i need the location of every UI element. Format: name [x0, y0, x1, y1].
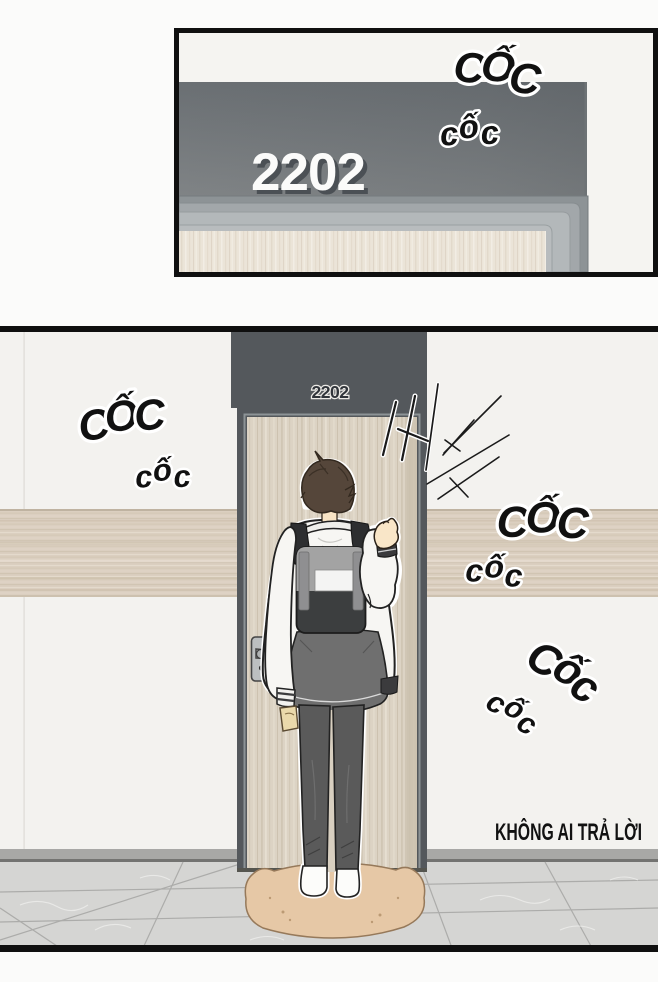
svg-text:2202: 2202 [312, 382, 350, 402]
svg-text:2202: 2202 [251, 143, 365, 202]
svg-text:CỐC: CỐC [495, 489, 591, 551]
svg-text:KHÔNG AI TRẢ LỜI: KHÔNG AI TRẢ LỜI [495, 817, 642, 846]
